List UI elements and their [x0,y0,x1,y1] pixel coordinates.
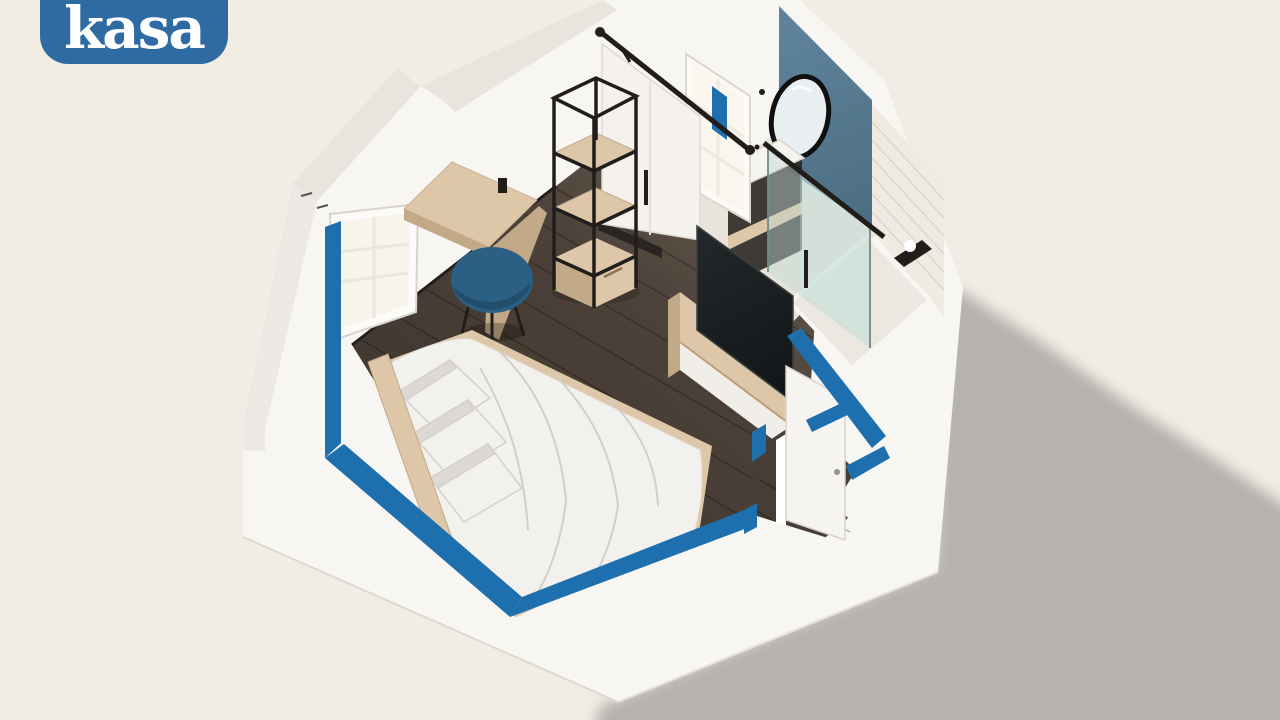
floorplan-svg: kasa [0,0,1280,720]
sconce-icon [759,89,765,95]
door-jamb [776,434,786,536]
logo-text: kasa [64,0,205,62]
faucet-icon [755,145,760,150]
door-knob [834,469,840,475]
floorplan-render: kasa [0,0,1280,720]
kasa-logo: kasa [40,0,228,64]
desk-outlet [498,178,507,193]
trim-west-edge [325,221,341,458]
